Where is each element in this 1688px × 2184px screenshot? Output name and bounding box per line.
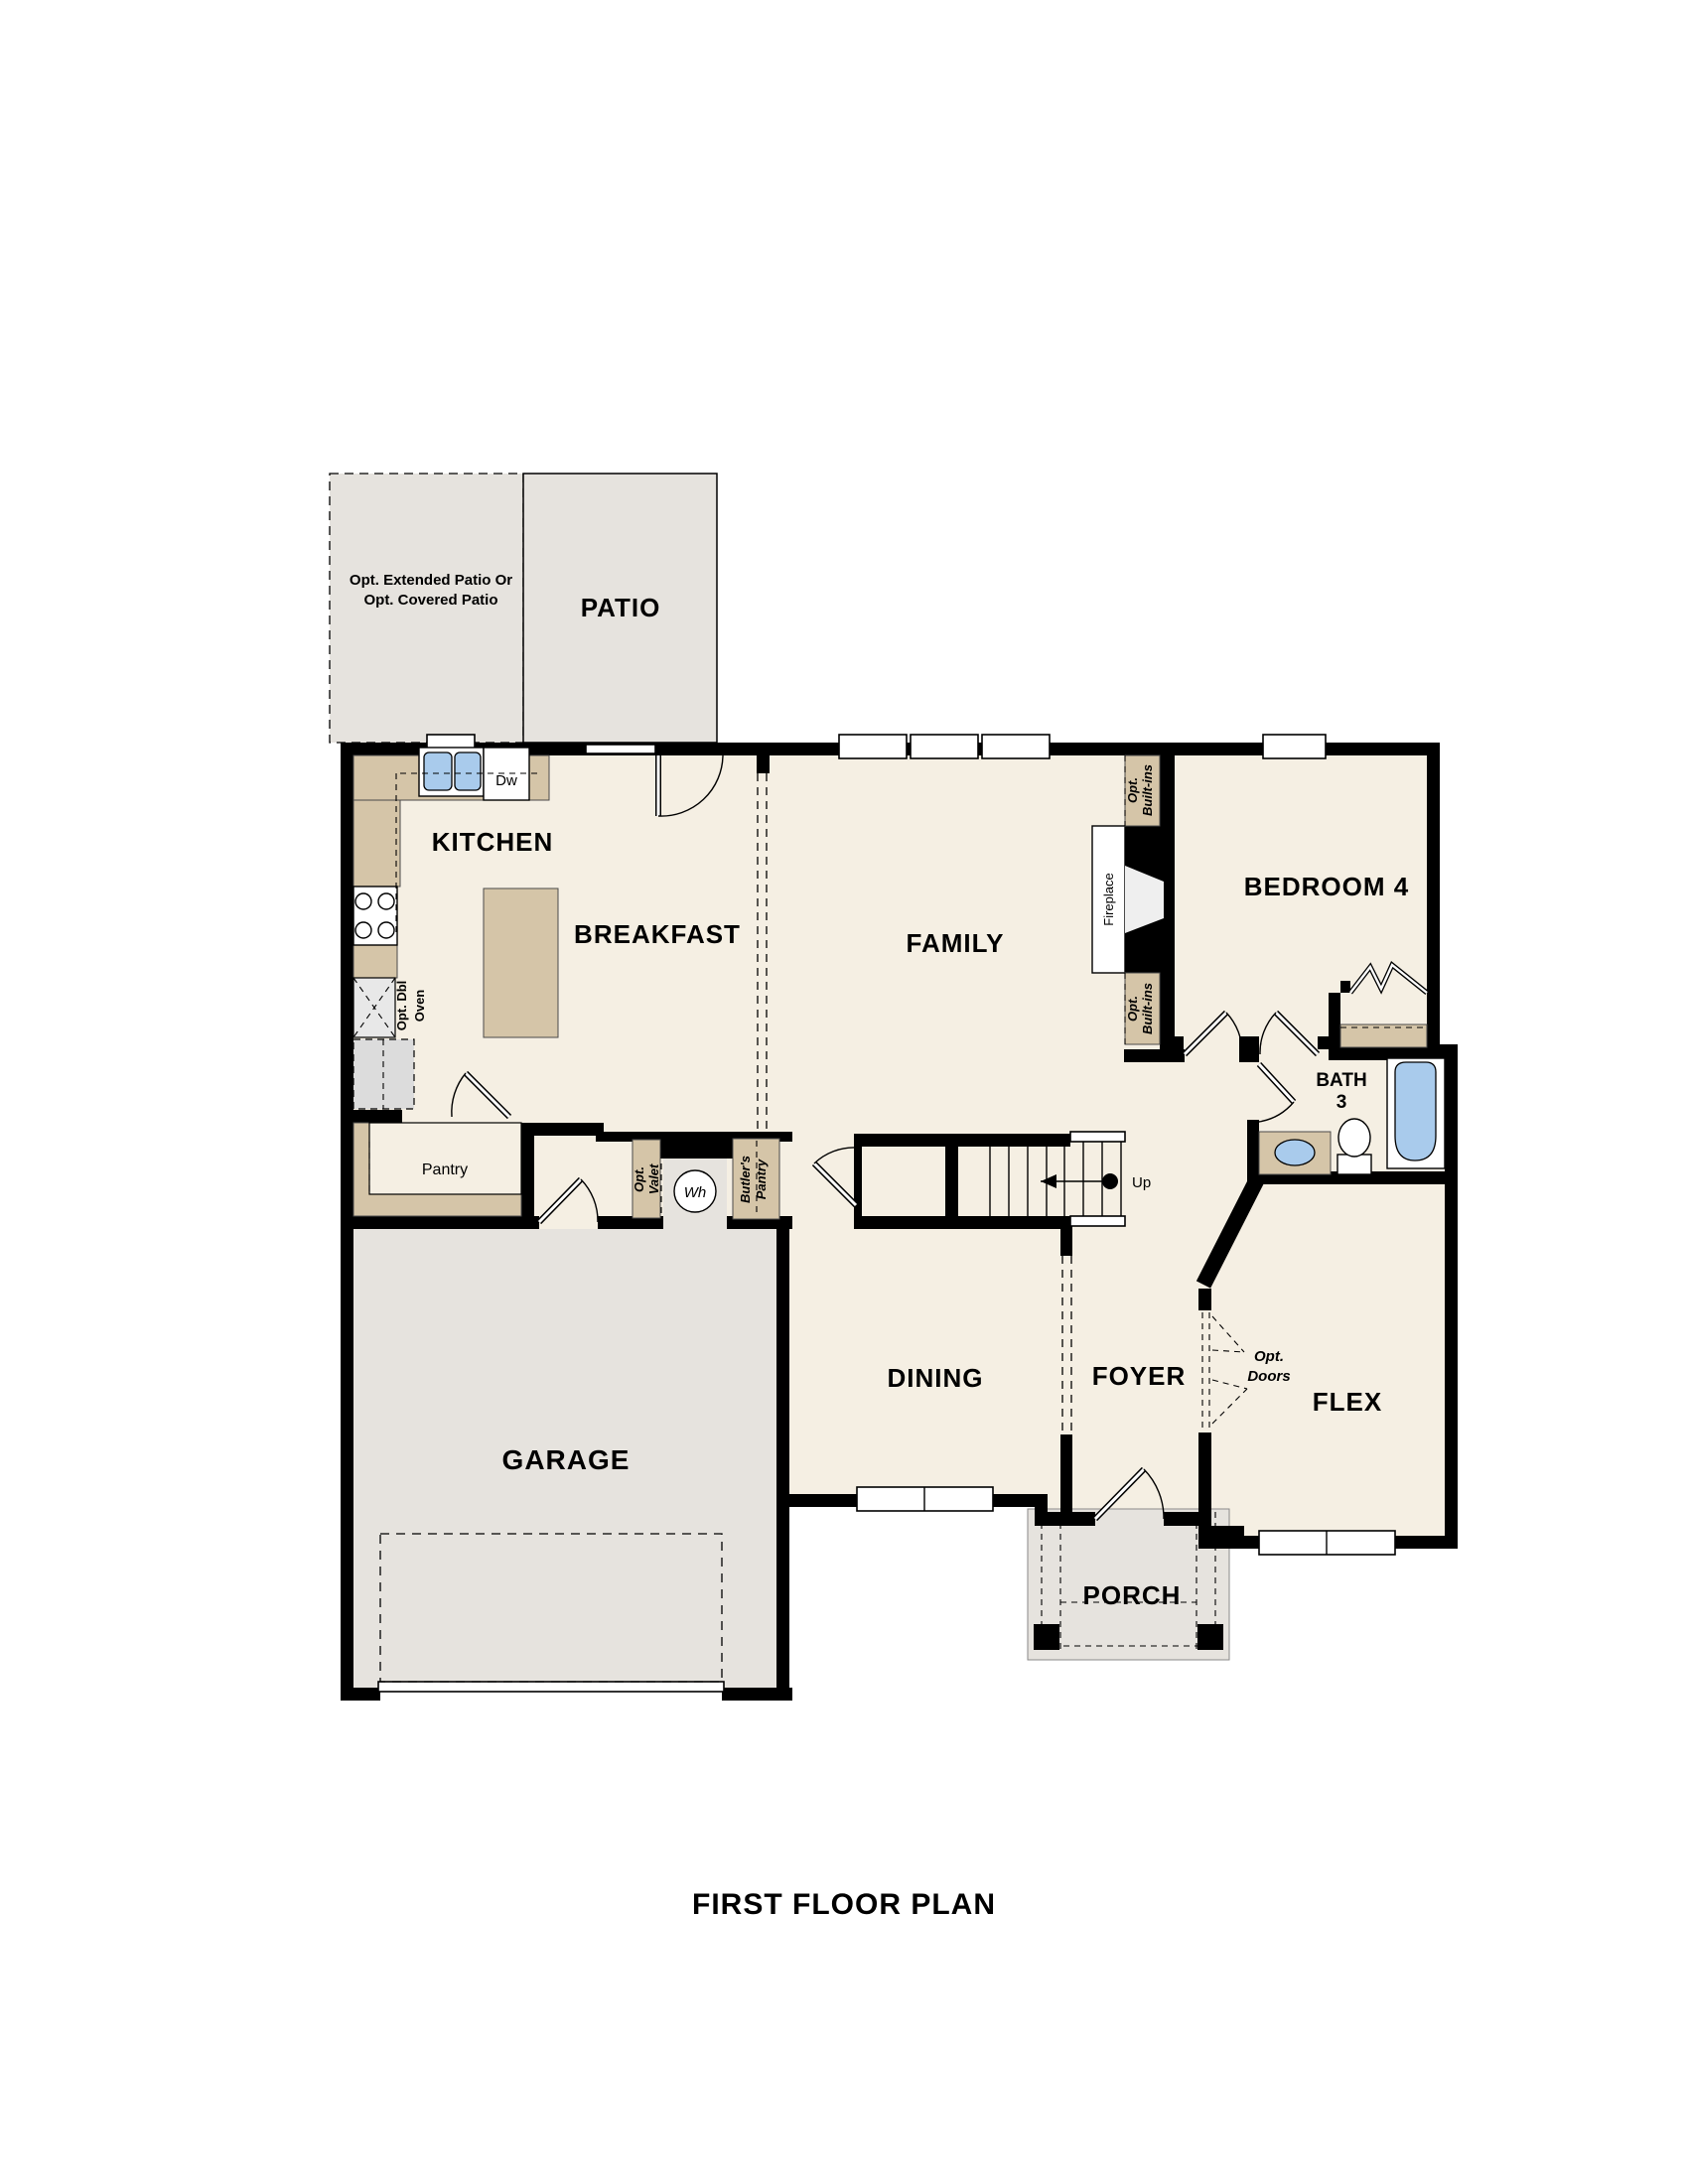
garage-door [378, 1682, 724, 1692]
up-label: Up [1132, 1174, 1151, 1191]
opt-valet-label-line1: Opt. [632, 1166, 646, 1192]
back-door-sidelite [586, 745, 655, 753]
garage-label: GARAGE [502, 1444, 631, 1475]
plan-title: FIRST FLOOR PLAN [692, 1888, 996, 1921]
porch-label: PORCH [1083, 1580, 1182, 1610]
bath3-label-line1: BATH [1316, 1070, 1366, 1091]
toilet-tank [1337, 1155, 1371, 1174]
bath3-label-line2: 3 [1336, 1092, 1347, 1113]
sink-basin-right [455, 752, 481, 790]
foyer-label: FOYER [1092, 1361, 1187, 1391]
opt-doors-label-line1: Opt. [1254, 1348, 1284, 1365]
floor-plan-page: Opt. Extended Patio Or Opt. Covered Pati… [0, 0, 1688, 2184]
stair-railing-bottom [1070, 1216, 1125, 1226]
stair-railing-top [1070, 1132, 1125, 1142]
family-label: FAMILY [907, 928, 1005, 958]
opt-dbl-oven-label-line1: Opt. Dbl [394, 981, 409, 1031]
breakfast-label: BREAKFAST [574, 919, 741, 949]
water-heater-label: Wh [684, 1184, 707, 1201]
vanity-sink [1275, 1140, 1315, 1165]
kitchen-counter-below-cooktop [353, 945, 397, 978]
bedroom4-label: BEDROOM 4 [1244, 872, 1409, 901]
opt-patio-note-line2: Opt. Covered Patio [363, 592, 497, 609]
pantry-interior [369, 1123, 521, 1194]
builtins-bottom-label-line2: Built-ins [1140, 983, 1155, 1034]
sink-basin-left [424, 752, 452, 790]
kitchen-island [484, 888, 558, 1037]
builtins-top-label-line1: Opt. [1125, 777, 1140, 803]
toilet-bowl [1338, 1119, 1370, 1157]
fireplace-label: Fireplace [1101, 873, 1116, 925]
patio-label: PATIO [581, 593, 661, 622]
floor-plan-drawing: Opt. Extended Patio Or Opt. Covered Pati… [0, 0, 1688, 2184]
builtins-top-label-line2: Built-ins [1140, 764, 1155, 816]
butlers-pantry-label-line1: Butler's [738, 1156, 753, 1203]
dishwasher-label: Dw [495, 772, 517, 789]
builtins-bottom-label-line1: Opt. [1125, 996, 1140, 1022]
bedroom4-window [1263, 735, 1326, 758]
porch-post-left [1034, 1624, 1059, 1650]
butlers-pantry-label-line2: Pantry [754, 1159, 769, 1199]
opt-valet-label-line2: Valet [646, 1163, 661, 1194]
kitchen-counter-left [353, 800, 400, 887]
pantry-label: Pantry [422, 1161, 468, 1178]
opt-dbl-oven-label-line2: Oven [412, 990, 427, 1023]
dining-label: DINING [888, 1363, 984, 1393]
family-window-3 [982, 735, 1050, 758]
family-window-1 [839, 735, 907, 758]
up-arrow-dot [1102, 1173, 1118, 1189]
porch-post-right [1197, 1624, 1223, 1650]
opt-doors-label-line2: Doors [1247, 1368, 1290, 1385]
bathtub [1395, 1062, 1436, 1160]
opt-patio-note-line1: Opt. Extended Patio Or [350, 572, 512, 589]
kitchen-label: KITCHEN [432, 827, 554, 857]
flex-label: FLEX [1313, 1387, 1382, 1417]
family-window-2 [911, 735, 978, 758]
